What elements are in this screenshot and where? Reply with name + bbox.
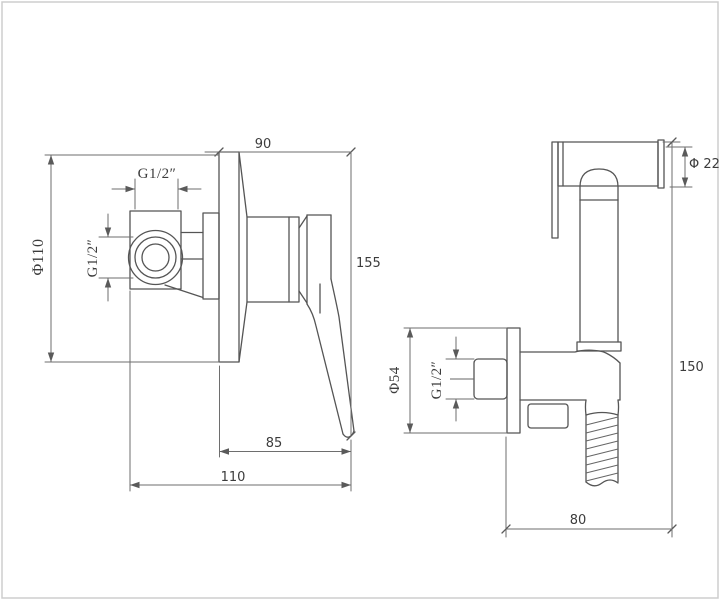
dim-80: 80 [502, 437, 672, 537]
dim-phi22: Φ 22 [666, 147, 720, 187]
wall-flange [219, 152, 247, 362]
dim-label-g12-side: G1/2″ [85, 239, 101, 278]
sprayer-head [558, 140, 664, 188]
inlet-port-circles [129, 231, 183, 285]
dim-150: 150 [663, 138, 704, 533]
dim-label-110: 110 [221, 470, 246, 485]
dim-label-g12-top: G1/2″ [138, 166, 177, 182]
dim-label-80: 80 [570, 513, 587, 528]
dim-g12-side: G1/2″ [85, 214, 133, 301]
dim-label-phi110: Φ110 [30, 238, 47, 275]
dim-85: 85 [220, 366, 352, 457]
sheet-frame [2, 2, 718, 598]
inlet-thread-block [474, 359, 507, 399]
dim-110: 110 [130, 291, 351, 491]
cartridge-stem [247, 216, 307, 303]
hose-nut [528, 404, 568, 428]
dim-90: 90 [205, 137, 355, 156]
dim-label-g12-right: G1/2″ [429, 361, 445, 400]
wall-plate [507, 328, 520, 433]
dim-g12-top: G1/2″ [112, 166, 201, 209]
dim-label-85: 85 [266, 436, 283, 451]
wall-outlet-holder [450, 328, 620, 433]
trigger-lever [552, 142, 558, 238]
dim-label-150: 150 [679, 360, 704, 375]
dim-label-phi22: Φ 22 [689, 157, 720, 172]
dim-label-90: 90 [255, 137, 272, 152]
dim-155: 155 [347, 152, 381, 440]
drawing-sheet: 90 155 Φ110 G1/2″ [0, 0, 720, 600]
valve-body [130, 211, 219, 299]
sprayer-body [577, 169, 621, 351]
dim-label-155: 155 [356, 256, 381, 271]
technical-drawing: 90 155 Φ110 G1/2″ [0, 0, 720, 600]
sprayer-view: Φ 22 150 80 Φ54 [387, 138, 720, 537]
mixer-valve-view: 90 155 Φ110 G1/2″ [30, 137, 381, 491]
dim-label-phi54: Φ54 [387, 366, 403, 393]
handle-lever [307, 215, 354, 437]
dim-phi54: Φ54 [387, 328, 507, 433]
spiral-hose [585, 400, 618, 486]
